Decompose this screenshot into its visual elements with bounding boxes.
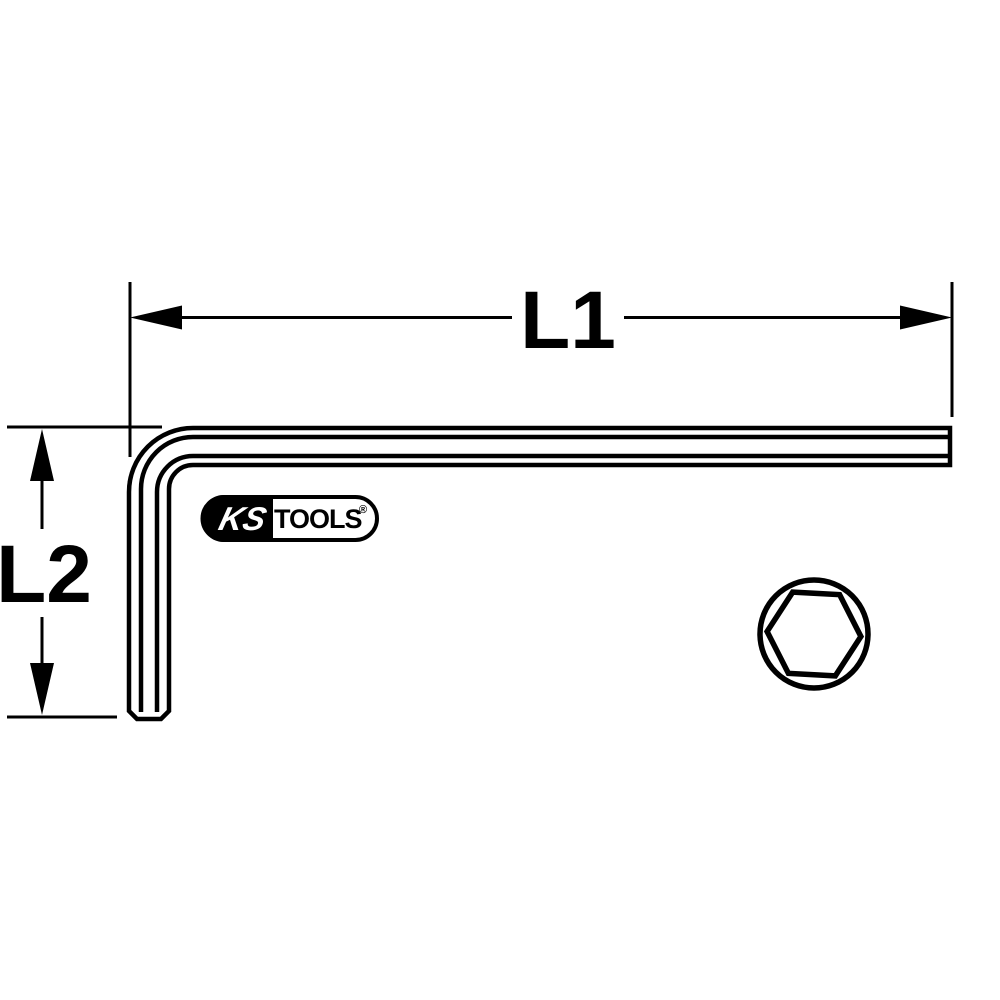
dimension-l2-label: L2 xyxy=(0,529,92,620)
dimension-l2: L2 xyxy=(0,427,162,717)
logo-ks-text: KS xyxy=(215,501,270,537)
dimension-l1-label: L1 xyxy=(520,275,616,366)
drawing-svg: L1 L2 KS xyxy=(0,0,1000,1000)
cross-section-circle xyxy=(760,580,868,688)
l2-arrow-up-icon xyxy=(30,429,54,481)
l1-arrow-right-icon xyxy=(900,306,952,330)
hex-key-facet-line-1 xyxy=(141,437,950,712)
ks-tools-logo: KS TOOLS ® xyxy=(202,496,377,541)
logo-tools-text: TOOLS xyxy=(274,504,362,534)
hex-key-technical-drawing: L1 L2 KS xyxy=(0,0,1000,1000)
hex-cross-section-icon xyxy=(760,580,868,688)
cross-section-hexagon xyxy=(767,592,861,676)
l2-arrow-down-icon xyxy=(30,663,54,715)
l1-arrow-left-icon xyxy=(130,306,182,330)
logo-registered-mark: ® xyxy=(359,504,367,516)
